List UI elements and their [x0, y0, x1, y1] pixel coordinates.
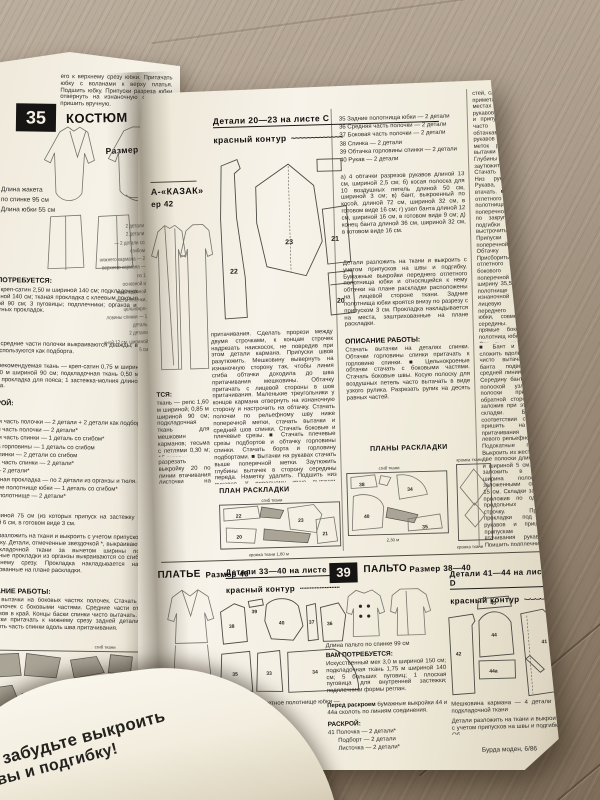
piece-number: 40 [279, 620, 285, 626]
photo-scene: ть по Обтач- ого кроя гор- а. На ть ся е… [0, 0, 600, 800]
section-title-dress: ПЛАТЬЕ [157, 569, 201, 581]
plan-piece-number: 38 [359, 482, 365, 488]
kazak-work-text: притачивания. Сделать прорези между двум… [211, 329, 337, 484]
page-curl: Не забудьте выкроить на швы и подгибку! [0, 672, 330, 800]
plan-piece-number: 23 [298, 518, 304, 524]
piece-number: 22 [230, 269, 238, 276]
selvage-label: кромка ткани 1,60 м [249, 551, 289, 557]
length-note: Длина жакета по спинке 95 см Длина юбки … [1, 185, 71, 215]
dress-cutting-list: 35 Задние полотнища юбки — 2 детали 36 С… [339, 113, 464, 166]
right-page-paper: А-«КАЗАК» ер 42 ТСЯ: ткань — репс 1,60 м… [138, 80, 563, 770]
plan-piece-number: 21 [322, 531, 328, 537]
dress-work-title: ОПИСАНИЕ РАБОТЫ: [345, 336, 420, 345]
dress-cutting-plans: сгиб ткани 38 34 40 35 2,30 м кромка тка… [344, 452, 497, 554]
piece-number: 21 [331, 236, 339, 243]
title-rule [151, 181, 197, 183]
coat-cut-title: РАСКРОЙ: [328, 720, 361, 728]
wavy-line: ~~~~~~~~~~~~~ [291, 132, 343, 143]
piece-number: 44а [489, 668, 498, 674]
coat-pieces-caption: Мешковина кармана — 4 детали из подкладо… [451, 699, 561, 718]
kazak-plan-title: ПЛАН РАСКЛАДКИ [219, 486, 290, 495]
piece-number: 41 [541, 639, 547, 645]
fold-label: сгиб ткани [261, 497, 283, 503]
right-page: А-«КАЗАК» ер 42 ТСЯ: ткань — репс 1,60 м… [138, 80, 563, 770]
dotted-line: ························ [299, 583, 339, 593]
kazak-illustration [152, 216, 215, 386]
fold-label: сгиб ткани [95, 644, 117, 649]
cutting-title: РАСКРОЙ: [0, 400, 14, 407]
kazak-cutting-plan: сгиб ткани 22 23 20 21 кромка ткани 1,60… [217, 495, 345, 558]
coat-pattern-pieces: 43 42 44 44а 41 [444, 593, 565, 700]
coat-layout-text: Детали разложить на ткани и выкроить с у… [452, 716, 562, 735]
piece-number: 39 [251, 609, 257, 615]
section-title-kazak: А-«КАЗАК» [151, 185, 204, 196]
piece-number: 42 [456, 651, 462, 657]
plan-width-label: 2,30 м [387, 537, 400, 542]
dress-finishing-text: ■ Бант и узел банта сложить вдоль попола… [479, 343, 559, 547]
section-title-coat: ПАЛЬТО [363, 563, 407, 575]
coat-before-cutting: Перед раскроем бумажные выкройки 44 и 44… [327, 700, 447, 719]
coat-need-text: Искусственный мех 3,0 м шириной 150 см; … [326, 658, 447, 701]
cut-item: 40 Рукав — 2 детали [340, 154, 464, 164]
kazak-need-text: ткань — репс 1,60 м шириной; 0,85 м шири… [157, 399, 211, 456]
piece-number: 44 [491, 632, 497, 638]
plan-piece-number: 22 [236, 514, 242, 520]
dress-work-text: Стачать вытачки на деталях спинки. Обтач… [345, 344, 472, 439]
kazak-need-title: ТСЯ: [156, 391, 172, 398]
page-number: 65 [553, 743, 562, 752]
plan-piece-number: 20 [236, 535, 242, 541]
details-sheet-line: Детали 41—44 на листе D [449, 567, 558, 590]
plan-piece-number: 35 [422, 524, 428, 530]
dress-layout-text: Детали разложить на ткани и выкроить с у… [343, 257, 469, 336]
you-will-need-title: ВАМ ПОТРЕБУЕТСЯ: [0, 277, 52, 285]
plan-piece-number: 40 [364, 514, 370, 520]
dress-work-text-cont: стей, сложить лицевыми и приметать в раз… [472, 89, 553, 343]
kazak-pattern-pieces: 22 23 21 20 [205, 150, 360, 326]
red-contour-label: красный контур [226, 584, 295, 595]
coat-illustration [340, 584, 439, 639]
work-description-title: ОПИСАНИЕ РАБОТЫ: [0, 588, 51, 596]
piece-number: 23 [285, 239, 293, 246]
piece-number: 36 [327, 621, 333, 627]
model-number-badge: 39 [329, 562, 358, 583]
piece-number: 43 [490, 600, 496, 606]
red-contour-label: красный контур [213, 133, 286, 145]
page-footer: Бурда моден, 6/86 65 [406, 737, 562, 759]
selvage-bottom-label: кромка ткани [457, 544, 484, 550]
selvage-top-label: кромка ткани [456, 457, 483, 463]
piece-number: 38 [229, 624, 235, 630]
coat-need-title: ВАМ ПОТРЕБУЕТСЯ: [326, 650, 393, 659]
dress-notes: а) 4 обтачки разрезов рукавов длиной 13 … [340, 171, 466, 258]
fold-label: сгиб ткани [379, 465, 401, 471]
dress-plans-title: ПЛАНЫ РАСКЛАДКИ [370, 444, 448, 453]
magazine-credit: Бурда моден, 6/86 [482, 745, 537, 754]
kazak-size-label: ер 42 [151, 199, 174, 209]
kazak-need-text2: разрезать выкройку 20 по линии втачивани… [158, 458, 211, 483]
piece-number: 37 [309, 620, 315, 626]
plan-piece-number: 34 [407, 487, 413, 493]
